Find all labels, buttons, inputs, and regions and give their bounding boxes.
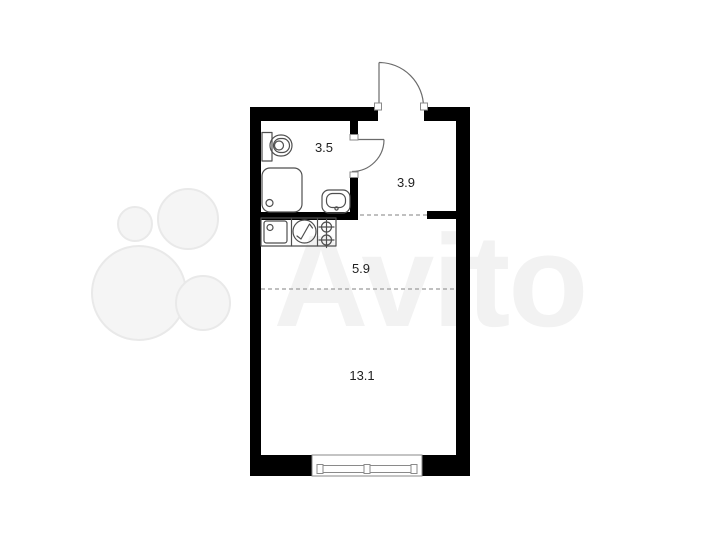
bathroom-door-jamb-bottom bbox=[350, 172, 358, 178]
toilet-bowl-inner bbox=[274, 139, 290, 153]
window-frame-mullion bbox=[364, 465, 370, 474]
window-frame-cap-left bbox=[317, 465, 323, 474]
window bbox=[312, 455, 422, 476]
room-area-living-room: 13.1 bbox=[349, 368, 374, 383]
avito-logo-circle-top bbox=[158, 189, 218, 249]
bathroom-door bbox=[350, 135, 384, 178]
kitchen-sink-faucet bbox=[267, 225, 273, 231]
window-frame-cap-right bbox=[411, 465, 417, 474]
shower-cabin bbox=[262, 168, 302, 212]
wall-bottom-left bbox=[250, 455, 312, 476]
entrance-door-jamb-left bbox=[375, 103, 382, 110]
floor-plan-canvas: Avito bbox=[0, 0, 720, 540]
room-area-bathroom: 3.5 bbox=[315, 140, 333, 155]
shower-tray bbox=[262, 168, 302, 212]
room-area-hallway: 3.9 bbox=[397, 175, 415, 190]
entrance-door-jamb-right bbox=[421, 103, 428, 110]
washbasin-bowl bbox=[327, 194, 346, 208]
entrance-door-swing-arc bbox=[379, 63, 424, 108]
avito-logo-circle-large bbox=[92, 246, 186, 340]
avito-logo-circle-right bbox=[176, 276, 230, 330]
floor-plan-image: Avito bbox=[0, 0, 720, 540]
wall-hallway-stub bbox=[427, 211, 456, 219]
bathroom-door-jamb-top bbox=[350, 135, 358, 141]
wall-right bbox=[456, 107, 470, 476]
wall-top-left bbox=[250, 107, 378, 121]
toilet bbox=[262, 133, 292, 162]
wall-left bbox=[250, 107, 261, 476]
bathroom-door-swing-arc bbox=[352, 140, 384, 172]
entrance-door bbox=[375, 63, 428, 111]
room-area-kitchen: 5.9 bbox=[352, 261, 370, 276]
wall-bottom-right bbox=[422, 455, 470, 476]
avito-logo-circle-small bbox=[118, 207, 152, 241]
watermark-text: Avito bbox=[274, 207, 587, 354]
toilet-flush-circle bbox=[275, 141, 284, 150]
shower-drain bbox=[266, 200, 273, 207]
